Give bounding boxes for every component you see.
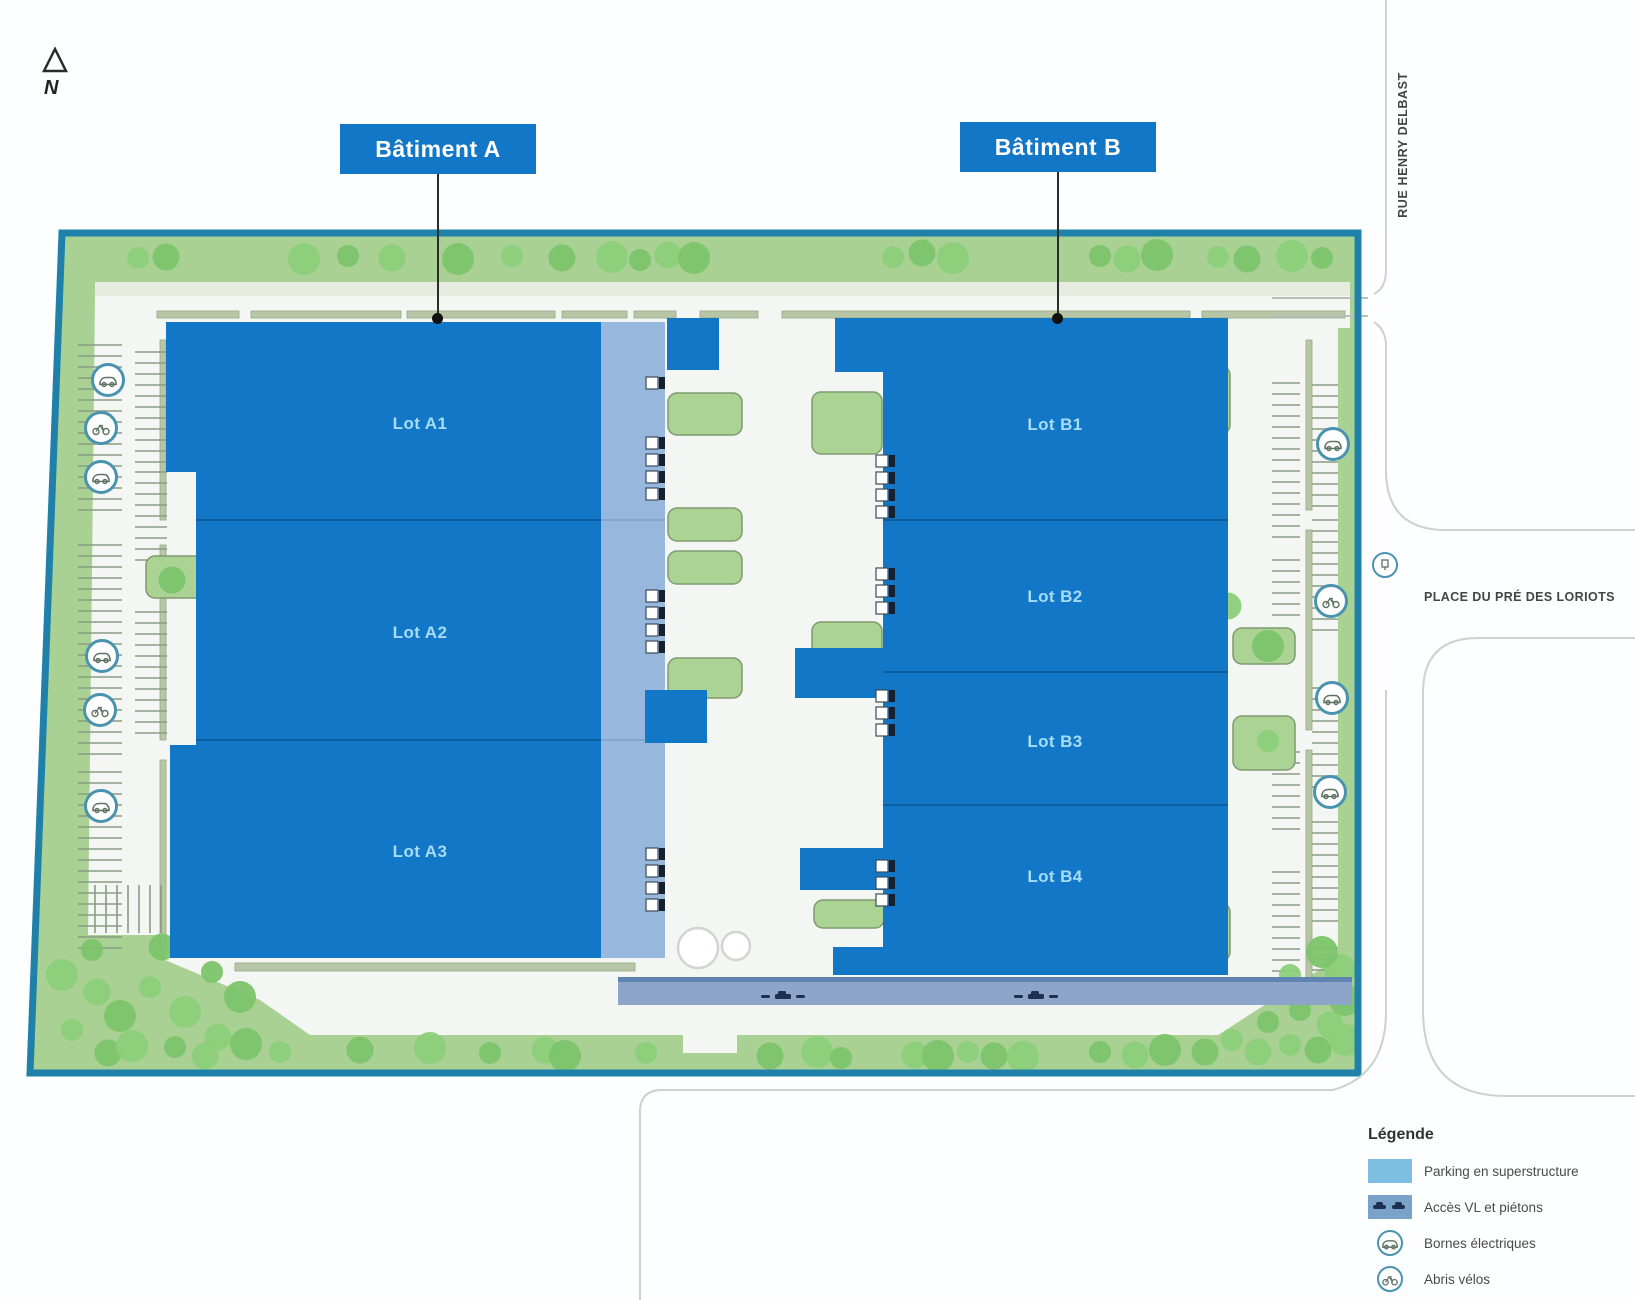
door-marker bbox=[646, 590, 658, 602]
door-marker bbox=[876, 602, 888, 614]
tree bbox=[678, 242, 710, 274]
landscape-island bbox=[668, 393, 742, 435]
legend-row-ev: Bornes électriques bbox=[1368, 1230, 1632, 1256]
north-arrow: N bbox=[42, 46, 82, 100]
tree bbox=[1306, 936, 1338, 968]
door-marker bbox=[646, 624, 658, 636]
legend: Légende Parking en superstructure Accès … bbox=[1368, 1126, 1632, 1300]
tree bbox=[1245, 1039, 1272, 1066]
tree bbox=[224, 981, 256, 1013]
tree bbox=[1257, 730, 1279, 752]
door-marker bbox=[889, 707, 895, 719]
parking-swatch bbox=[1368, 1159, 1412, 1183]
hedge bbox=[407, 311, 555, 318]
street-name-rue-henry-delbast: RUE HENRY DELBAST bbox=[1396, 72, 1410, 218]
legend-label: Abris vélos bbox=[1424, 1272, 1490, 1287]
building-a-extension bbox=[166, 322, 196, 472]
door-marker bbox=[659, 899, 665, 911]
ev-charger-icon bbox=[84, 460, 118, 494]
building-annex bbox=[667, 318, 719, 370]
tree bbox=[549, 245, 576, 272]
hedge bbox=[700, 311, 758, 318]
building-annex bbox=[800, 848, 883, 890]
door-marker bbox=[659, 454, 665, 466]
bike-shelter-icon bbox=[1314, 584, 1348, 618]
tree bbox=[230, 1028, 262, 1060]
door-marker bbox=[659, 882, 665, 894]
door-marker bbox=[889, 585, 895, 597]
tree bbox=[81, 939, 103, 961]
door-marker bbox=[646, 607, 658, 619]
legend-label: Parking en superstructure bbox=[1424, 1164, 1579, 1179]
hedge bbox=[160, 340, 166, 520]
tree bbox=[655, 242, 682, 269]
tree bbox=[801, 1036, 833, 1068]
door-marker bbox=[646, 848, 658, 860]
door-marker bbox=[876, 568, 888, 580]
tree bbox=[379, 245, 406, 272]
tree bbox=[922, 1040, 954, 1072]
tree bbox=[164, 1036, 186, 1058]
tree bbox=[159, 567, 186, 594]
tree bbox=[1122, 1042, 1149, 1069]
ev-charger-icon bbox=[85, 639, 119, 673]
landscape-island bbox=[812, 392, 882, 454]
road-edge bbox=[1423, 638, 1635, 1096]
ev-charger-icon bbox=[1377, 1230, 1403, 1256]
plan-drawing bbox=[0, 0, 1635, 1300]
access-road-curb bbox=[618, 977, 1352, 982]
landscape-island bbox=[668, 508, 742, 541]
hedge bbox=[1306, 530, 1312, 730]
tree bbox=[442, 243, 474, 275]
ev-charger-icon bbox=[1315, 681, 1349, 715]
tree bbox=[981, 1043, 1008, 1070]
bike-shelter-icon bbox=[1377, 1266, 1403, 1292]
door-marker bbox=[659, 848, 665, 860]
tree bbox=[1252, 630, 1284, 662]
door-marker bbox=[876, 472, 888, 484]
door-marker bbox=[659, 488, 665, 500]
lot-a2-label: Lot A2 bbox=[393, 623, 448, 643]
north-label: N bbox=[44, 77, 82, 100]
door-marker bbox=[659, 865, 665, 877]
road-edge bbox=[1374, 0, 1386, 294]
tree bbox=[104, 1000, 136, 1032]
door-marker bbox=[659, 471, 665, 483]
door-marker bbox=[659, 641, 665, 653]
tree bbox=[116, 1030, 148, 1062]
parking-superstructure bbox=[601, 322, 665, 958]
tree bbox=[479, 1042, 501, 1064]
door-marker bbox=[876, 585, 888, 597]
door-marker bbox=[646, 377, 658, 389]
building-annex bbox=[795, 648, 883, 698]
door-marker bbox=[646, 899, 658, 911]
door-marker bbox=[876, 489, 888, 501]
tree bbox=[629, 249, 651, 271]
door-marker bbox=[876, 690, 888, 702]
sidewalk-strip bbox=[95, 282, 1350, 296]
hedge bbox=[1306, 340, 1312, 510]
tree bbox=[1007, 1041, 1039, 1073]
tree bbox=[192, 1043, 219, 1070]
tree bbox=[1207, 246, 1229, 268]
door-marker bbox=[889, 894, 895, 906]
door-marker bbox=[889, 568, 895, 580]
tree bbox=[46, 959, 78, 991]
tree bbox=[957, 1041, 979, 1063]
tree bbox=[1305, 1037, 1332, 1064]
turning-circle bbox=[678, 928, 718, 968]
door-marker bbox=[646, 471, 658, 483]
road-edge bbox=[1374, 322, 1635, 530]
door-marker bbox=[889, 602, 895, 614]
door-marker bbox=[646, 865, 658, 877]
tree bbox=[1114, 246, 1141, 273]
legend-row-parking: Parking en superstructure bbox=[1368, 1158, 1632, 1184]
door-marker bbox=[646, 454, 658, 466]
tree bbox=[937, 242, 969, 274]
tree bbox=[201, 961, 223, 983]
tree bbox=[169, 996, 201, 1028]
turning-circle bbox=[722, 932, 750, 960]
lot-b3-label: Lot B3 bbox=[1027, 732, 1082, 752]
door-marker bbox=[646, 437, 658, 449]
tree bbox=[127, 247, 149, 269]
door-marker bbox=[889, 472, 895, 484]
legend-row-access: Accès VL et piétons bbox=[1368, 1194, 1632, 1220]
ev-charger-icon bbox=[84, 789, 118, 823]
tree bbox=[1234, 246, 1261, 273]
building-a-leader-line bbox=[437, 174, 439, 318]
door-marker bbox=[876, 860, 888, 872]
tree bbox=[549, 1040, 581, 1072]
ev-charger-icon bbox=[1313, 775, 1347, 809]
door-marker bbox=[889, 455, 895, 467]
lot-a3-label: Lot A3 bbox=[393, 842, 448, 862]
building-b-label: Bâtiment B bbox=[960, 122, 1156, 172]
tree bbox=[1257, 1011, 1279, 1033]
access-swatch bbox=[1368, 1195, 1412, 1219]
door-marker bbox=[889, 690, 895, 702]
tree bbox=[1149, 1034, 1181, 1066]
door-marker bbox=[659, 377, 665, 389]
tree bbox=[347, 1037, 374, 1064]
building-annex bbox=[645, 690, 707, 743]
building-b-leader-dot bbox=[1052, 313, 1063, 324]
bike-shelter-icon bbox=[84, 411, 118, 445]
door-marker bbox=[889, 877, 895, 889]
lot-b2-label: Lot B2 bbox=[1027, 587, 1082, 607]
door-marker bbox=[876, 707, 888, 719]
tree bbox=[1279, 1034, 1301, 1056]
tree bbox=[1192, 1039, 1219, 1066]
tree bbox=[635, 1042, 657, 1064]
tree bbox=[501, 245, 523, 267]
tree bbox=[61, 1019, 83, 1041]
lot-a1-label: Lot A1 bbox=[393, 414, 448, 434]
tree bbox=[153, 244, 180, 271]
legend-label: Accès VL et piétons bbox=[1424, 1200, 1543, 1215]
site-plan: N Bâtiment A Bâtiment B Lot A1 Lot A2 Lo… bbox=[0, 0, 1635, 1300]
door-marker bbox=[659, 437, 665, 449]
tree bbox=[830, 1047, 852, 1069]
tree bbox=[269, 1041, 291, 1063]
tree bbox=[1089, 245, 1111, 267]
landscape-island bbox=[814, 900, 884, 928]
tree bbox=[882, 246, 904, 268]
tree bbox=[1221, 1029, 1243, 1051]
door-marker bbox=[876, 894, 888, 906]
door-marker bbox=[646, 488, 658, 500]
tree bbox=[1089, 1041, 1111, 1063]
lot-b1-label: Lot B1 bbox=[1027, 415, 1082, 435]
door-marker bbox=[876, 724, 888, 736]
door-marker bbox=[876, 877, 888, 889]
tree bbox=[288, 243, 320, 275]
door-marker bbox=[646, 641, 658, 653]
road-edge bbox=[640, 1090, 1333, 1300]
legend-title: Légende bbox=[1368, 1126, 1632, 1144]
door-marker bbox=[889, 489, 895, 501]
door-marker bbox=[889, 724, 895, 736]
hedge bbox=[157, 311, 239, 318]
door-marker bbox=[889, 506, 895, 518]
building-a-leader-dot bbox=[432, 313, 443, 324]
building-b-leader-line bbox=[1057, 172, 1059, 318]
tree bbox=[1276, 240, 1308, 272]
building-annex bbox=[833, 947, 883, 975]
hedge bbox=[235, 963, 635, 971]
building-a-extension bbox=[170, 745, 196, 958]
tree bbox=[139, 976, 161, 998]
hedge bbox=[251, 311, 401, 318]
building-annex bbox=[835, 318, 883, 372]
legend-row-bike: Abris vélos bbox=[1368, 1266, 1632, 1292]
hedge bbox=[634, 311, 676, 318]
door-marker bbox=[659, 624, 665, 636]
bike-shelter-icon bbox=[83, 693, 117, 727]
landscape-island bbox=[668, 551, 742, 584]
building-a-label: Bâtiment A bbox=[340, 124, 536, 174]
tree bbox=[1311, 247, 1333, 269]
door-marker bbox=[646, 882, 658, 894]
tree bbox=[596, 241, 628, 273]
door-marker bbox=[876, 455, 888, 467]
hedge bbox=[562, 311, 627, 318]
hedge bbox=[782, 311, 1190, 318]
tree bbox=[1141, 239, 1173, 271]
ev-charger-icon bbox=[1316, 427, 1350, 461]
sign-icon bbox=[1372, 552, 1398, 578]
tree bbox=[84, 979, 111, 1006]
tree bbox=[337, 245, 359, 267]
legend-label: Bornes électriques bbox=[1424, 1236, 1536, 1251]
north-arrow-icon bbox=[42, 46, 70, 74]
door-marker bbox=[876, 506, 888, 518]
door-marker bbox=[659, 590, 665, 602]
tree bbox=[414, 1032, 446, 1064]
tree bbox=[909, 240, 936, 267]
street-name-place-du-pre-des-loriots: PLACE DU PRÉ DES LORIOTS bbox=[1424, 590, 1615, 604]
ev-charger-icon bbox=[91, 363, 125, 397]
door-marker bbox=[659, 607, 665, 619]
door-marker bbox=[889, 860, 895, 872]
lot-b4-label: Lot B4 bbox=[1027, 867, 1082, 887]
tree bbox=[757, 1043, 784, 1070]
